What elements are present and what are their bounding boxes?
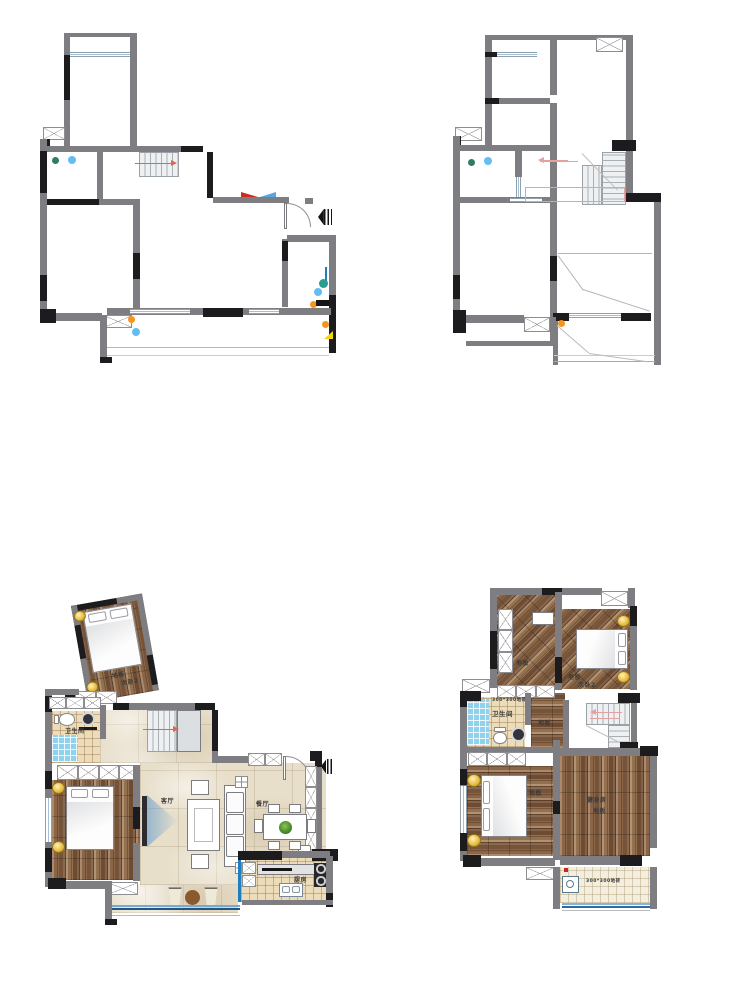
rect	[238, 860, 241, 902]
basin	[511, 727, 526, 742]
rect	[191, 854, 209, 869]
shaft-box	[497, 685, 516, 698]
rect	[112, 908, 240, 910]
pillow	[92, 789, 109, 798]
wall	[181, 146, 203, 152]
wall	[40, 151, 47, 193]
wall	[282, 851, 330, 858]
wall	[48, 878, 66, 889]
wall	[621, 313, 651, 321]
wall	[560, 856, 622, 865]
rect	[532, 612, 554, 625]
wall	[105, 919, 117, 925]
rect	[142, 796, 147, 846]
direction-arrow	[143, 725, 179, 732]
wall	[553, 801, 560, 814]
wall	[97, 146, 103, 199]
blanket	[86, 619, 141, 672]
rect	[316, 300, 329, 306]
wall	[460, 691, 467, 707]
window	[45, 798, 52, 842]
shaft-box	[498, 609, 513, 630]
wood-v-floor	[560, 756, 650, 856]
wall	[481, 858, 555, 866]
wall	[550, 256, 557, 281]
direction-arrow	[590, 708, 622, 715]
door-swing-arc	[287, 203, 311, 227]
utility-dot	[128, 316, 135, 323]
utility-dot	[319, 279, 328, 288]
shaft-box	[468, 752, 487, 766]
bed	[481, 775, 527, 837]
line	[590, 718, 620, 719]
nightstand	[467, 834, 481, 847]
shaft-box	[601, 591, 628, 606]
entry-marker-icon	[318, 209, 332, 225]
pillow	[483, 781, 490, 804]
rectline	[525, 187, 625, 202]
side-table	[235, 776, 248, 788]
wall	[553, 867, 560, 909]
shaft-box	[99, 765, 120, 780]
wall	[133, 807, 140, 829]
line	[558, 253, 652, 254]
wall	[100, 705, 106, 739]
room-label: 地板	[529, 791, 542, 797]
window	[249, 309, 279, 314]
line	[558, 255, 584, 290]
utility-dot	[322, 321, 329, 328]
pillow	[71, 789, 88, 798]
shaft-box	[84, 697, 101, 709]
blanket	[577, 630, 615, 668]
washing-machine	[562, 876, 579, 893]
shaft-box	[507, 752, 526, 766]
nightstand	[52, 841, 65, 853]
rect	[191, 780, 209, 795]
room-label: 卫生间	[492, 711, 513, 718]
cabinet-row	[498, 609, 513, 673]
room-label: 地板	[568, 675, 581, 681]
wall	[453, 145, 551, 151]
shaft-box	[265, 753, 282, 766]
wall	[620, 855, 642, 866]
bed	[576, 629, 628, 669]
room-label: 300*300地砖	[586, 880, 621, 885]
room-label: 地板	[538, 721, 551, 727]
wall	[238, 851, 282, 860]
kitchen-sink	[279, 883, 303, 897]
plan-level2-structural	[450, 25, 745, 370]
utility-dot	[52, 157, 59, 164]
wall	[626, 35, 633, 195]
shaft-box	[487, 752, 506, 766]
entry-marker-icon	[321, 759, 334, 774]
bedroom2-block: 地板次卧2	[71, 593, 159, 702]
wall	[463, 855, 481, 867]
rect	[226, 814, 244, 835]
wall	[66, 881, 108, 889]
shaft-box	[498, 652, 513, 673]
shaft-box	[49, 697, 66, 709]
toilet	[492, 727, 508, 745]
rect	[562, 903, 650, 905]
wall	[213, 197, 289, 203]
plan-level2-furnished: 地板地板次卧2300*300地砖卫生间地板地板健身房地板300*300地砖	[450, 585, 675, 935]
cabinet-row	[468, 752, 526, 766]
wall	[654, 318, 661, 365]
wall	[133, 253, 140, 279]
room-label: 客厅	[161, 799, 174, 805]
room-label: 厨房	[294, 878, 307, 884]
plan-level1-structural	[35, 25, 350, 370]
wall	[453, 275, 460, 299]
wall	[550, 281, 557, 317]
wall	[654, 202, 661, 318]
wall	[203, 308, 243, 317]
shaft-box	[108, 882, 138, 895]
window	[516, 177, 521, 197]
wall	[550, 103, 557, 256]
direction-arrow	[538, 156, 568, 163]
pillow	[87, 611, 107, 623]
utility-dot	[132, 328, 140, 336]
room-label: 次卧2	[578, 683, 596, 689]
wall	[47, 199, 99, 205]
cabinet-row	[49, 697, 101, 709]
pillow	[618, 651, 626, 665]
wall	[525, 693, 531, 725]
wall	[64, 55, 70, 100]
direction-arrow	[135, 159, 177, 166]
wall	[40, 275, 47, 301]
wall	[460, 769, 467, 785]
utility-dot	[468, 159, 475, 166]
shaft-box	[498, 630, 513, 651]
rect	[254, 819, 263, 833]
window	[497, 52, 537, 57]
room-label: 300*300地砖	[492, 699, 527, 704]
wall	[650, 867, 657, 909]
wall	[212, 710, 218, 751]
line	[562, 910, 650, 911]
blanket	[67, 802, 113, 849]
window	[130, 309, 190, 314]
line	[112, 915, 240, 916]
wall	[650, 756, 657, 848]
rect	[307, 819, 316, 833]
wall	[287, 235, 335, 242]
shaft-box	[536, 685, 555, 698]
wall	[100, 315, 107, 363]
rect	[268, 804, 280, 813]
shower-floor	[52, 735, 78, 762]
shaft-box	[78, 765, 99, 780]
plant	[279, 821, 292, 834]
floorplan-sheet: 地板次卧2卫生间餐厅客厅厨房 地板地板次卧2300*300地砖卫生间地板地板健身…	[0, 0, 750, 1004]
room-label: 地板	[516, 661, 529, 667]
wall	[466, 341, 556, 346]
room-label: 健身房	[587, 798, 607, 804]
utility-dot	[484, 157, 492, 165]
rect	[289, 841, 301, 850]
line	[107, 347, 329, 348]
wall	[47, 146, 103, 152]
wall	[453, 310, 466, 333]
wall	[563, 700, 569, 748]
wall	[329, 295, 336, 353]
room-label: 地板	[593, 809, 606, 815]
rect	[177, 710, 201, 752]
wall	[515, 145, 522, 177]
utility-dot	[68, 156, 76, 164]
nightstand	[617, 671, 630, 683]
wall	[130, 33, 137, 147]
cabinet-row	[57, 765, 140, 780]
line	[583, 289, 650, 312]
bed	[66, 786, 114, 850]
rectline	[194, 808, 213, 842]
rect	[289, 804, 301, 813]
wall	[218, 756, 248, 763]
wall	[640, 746, 658, 756]
wall	[56, 313, 102, 321]
wall	[560, 748, 652, 756]
pillow	[109, 607, 129, 619]
wall	[550, 35, 557, 95]
shaft-box	[305, 787, 317, 808]
window	[70, 52, 130, 57]
rect	[564, 868, 568, 872]
shaft-box	[305, 766, 317, 787]
shaft-box	[242, 862, 256, 874]
wall	[282, 241, 288, 261]
shaft-box	[524, 317, 550, 332]
utility-dot	[314, 288, 322, 296]
window	[569, 313, 621, 318]
line	[107, 355, 329, 356]
wall	[466, 315, 524, 323]
wall	[207, 152, 213, 198]
rect	[112, 905, 240, 907]
wall	[485, 98, 499, 104]
nightstand	[617, 615, 630, 627]
shaft-box	[66, 697, 83, 709]
nightstand	[52, 782, 65, 794]
rect	[562, 906, 650, 908]
room-label: 餐厅	[256, 802, 269, 808]
wall	[485, 52, 497, 57]
wall	[305, 198, 313, 204]
rect	[268, 841, 280, 850]
wall	[45, 848, 52, 872]
shaft-box	[526, 867, 554, 880]
wall	[242, 900, 333, 905]
toilet	[54, 713, 76, 726]
wall	[195, 703, 215, 710]
shaft-box	[248, 753, 265, 766]
wall	[133, 843, 140, 881]
window	[460, 786, 467, 833]
pillow	[618, 633, 626, 647]
shaft-box	[57, 765, 78, 780]
wall	[628, 588, 635, 608]
wall	[100, 357, 112, 363]
wall	[113, 703, 129, 710]
cabinet-row	[248, 753, 282, 766]
plan-level1-furnished: 地板次卧2卫生间餐厅客厅厨房	[35, 593, 355, 933]
rect	[262, 868, 292, 871]
wall	[555, 657, 562, 683]
wall	[490, 631, 497, 669]
wall	[612, 140, 636, 151]
wall	[460, 833, 467, 851]
wall	[40, 309, 56, 323]
wall	[630, 606, 637, 626]
wall	[618, 693, 640, 703]
nightstand	[467, 774, 481, 787]
pillow	[483, 808, 490, 831]
blanket	[493, 776, 526, 836]
shower-floor	[467, 699, 489, 745]
shaft-box	[596, 37, 623, 52]
basin	[81, 712, 95, 726]
line	[557, 325, 589, 353]
wall	[553, 740, 560, 860]
round-table	[185, 890, 200, 905]
shaft-box	[242, 875, 256, 887]
room-label: 卫生间	[65, 729, 85, 735]
electric-box-wedge	[241, 192, 258, 197]
rect	[226, 792, 244, 813]
wall	[45, 771, 52, 789]
bed	[82, 603, 142, 673]
wall	[64, 33, 137, 37]
